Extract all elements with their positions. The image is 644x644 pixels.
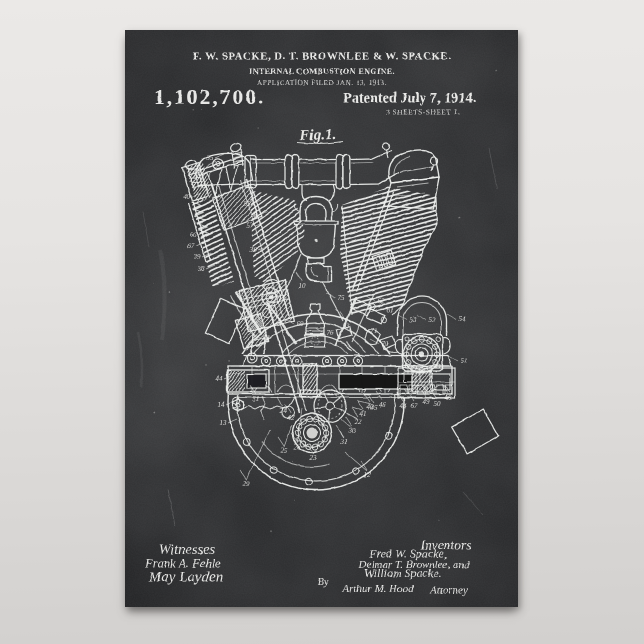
svg-text:68: 68 <box>263 334 271 342</box>
svg-text:48: 48 <box>445 394 453 402</box>
svg-text:29: 29 <box>243 480 251 488</box>
svg-text:71: 71 <box>371 327 378 335</box>
svg-text:30: 30 <box>348 427 357 435</box>
svg-text:10: 10 <box>299 282 307 290</box>
svg-text:56: 56 <box>251 211 259 219</box>
svg-text:By: By <box>318 577 329 588</box>
svg-text:72: 72 <box>237 290 245 298</box>
svg-text:53: 53 <box>410 316 418 324</box>
svg-text:13: 13 <box>220 419 228 427</box>
svg-text:William Spacke.: William Spacke. <box>364 566 441 580</box>
svg-text:46: 46 <box>379 401 387 409</box>
svg-text:Patented July 7, 1914.: Patented July 7, 1914. <box>343 91 476 107</box>
svg-text:44: 44 <box>400 402 408 410</box>
svg-text:44: 44 <box>216 375 224 383</box>
svg-text:INTERNAL COMBUSTION ENGINE.: INTERNAL COMBUSTION ENGINE. <box>249 67 395 76</box>
svg-text:76: 76 <box>327 329 335 337</box>
svg-text:Frank A. Fehle: Frank A. Fehle <box>144 557 221 571</box>
svg-text:50: 50 <box>434 400 442 408</box>
svg-text:51: 51 <box>461 357 468 365</box>
svg-text:42: 42 <box>288 414 296 422</box>
svg-text:36: 36 <box>249 246 258 254</box>
svg-text:APPLICATION FILED JAN. 13, 191: APPLICATION FILED JAN. 13, 1913. <box>257 78 387 87</box>
svg-text:52: 52 <box>429 316 437 324</box>
svg-text:Fig.1.: Fig.1. <box>298 127 336 144</box>
svg-text:67: 67 <box>188 242 196 250</box>
svg-text:70: 70 <box>382 340 390 348</box>
svg-text:45: 45 <box>371 404 379 412</box>
svg-text:39: 39 <box>193 253 202 261</box>
svg-text:41: 41 <box>360 410 367 418</box>
svg-text:14: 14 <box>218 401 226 409</box>
svg-text:22: 22 <box>355 418 363 426</box>
svg-text:24: 24 <box>280 407 288 415</box>
svg-text:63: 63 <box>343 322 351 330</box>
svg-text:25: 25 <box>281 447 289 455</box>
svg-text:51: 51 <box>253 395 260 403</box>
svg-text:Arthur M. Hood: Arthur M. Hood <box>341 583 414 595</box>
svg-text:26: 26 <box>294 443 302 451</box>
svg-text:May Layden: May Layden <box>148 570 224 586</box>
svg-text:75: 75 <box>338 294 346 302</box>
svg-text:3 SHEETS-SHEET 1.: 3 SHEETS-SHEET 1. <box>386 108 460 117</box>
svg-text:38: 38 <box>197 265 206 273</box>
svg-text:1,102,700.: 1,102,700. <box>154 85 265 109</box>
svg-text:12: 12 <box>364 471 372 479</box>
svg-text:Attorney: Attorney <box>429 585 468 597</box>
svg-text:55: 55 <box>244 200 252 208</box>
svg-text:61: 61 <box>387 306 394 314</box>
svg-text:F. W. SPACKE, D. T. BROWNLEE &: F. W. SPACKE, D. T. BROWNLEE & W. SPACKE… <box>193 51 451 63</box>
svg-text:31: 31 <box>340 438 348 446</box>
svg-text:54: 54 <box>459 315 467 323</box>
svg-text:23: 23 <box>310 454 318 462</box>
svg-text:62: 62 <box>378 297 386 305</box>
svg-text:57: 57 <box>247 222 255 230</box>
svg-text:69: 69 <box>297 320 305 328</box>
svg-text:67: 67 <box>411 402 419 410</box>
svg-text:66: 66 <box>190 231 198 239</box>
svg-text:40: 40 <box>184 193 192 201</box>
svg-text:49: 49 <box>423 398 431 406</box>
svg-text:35: 35 <box>206 154 215 162</box>
